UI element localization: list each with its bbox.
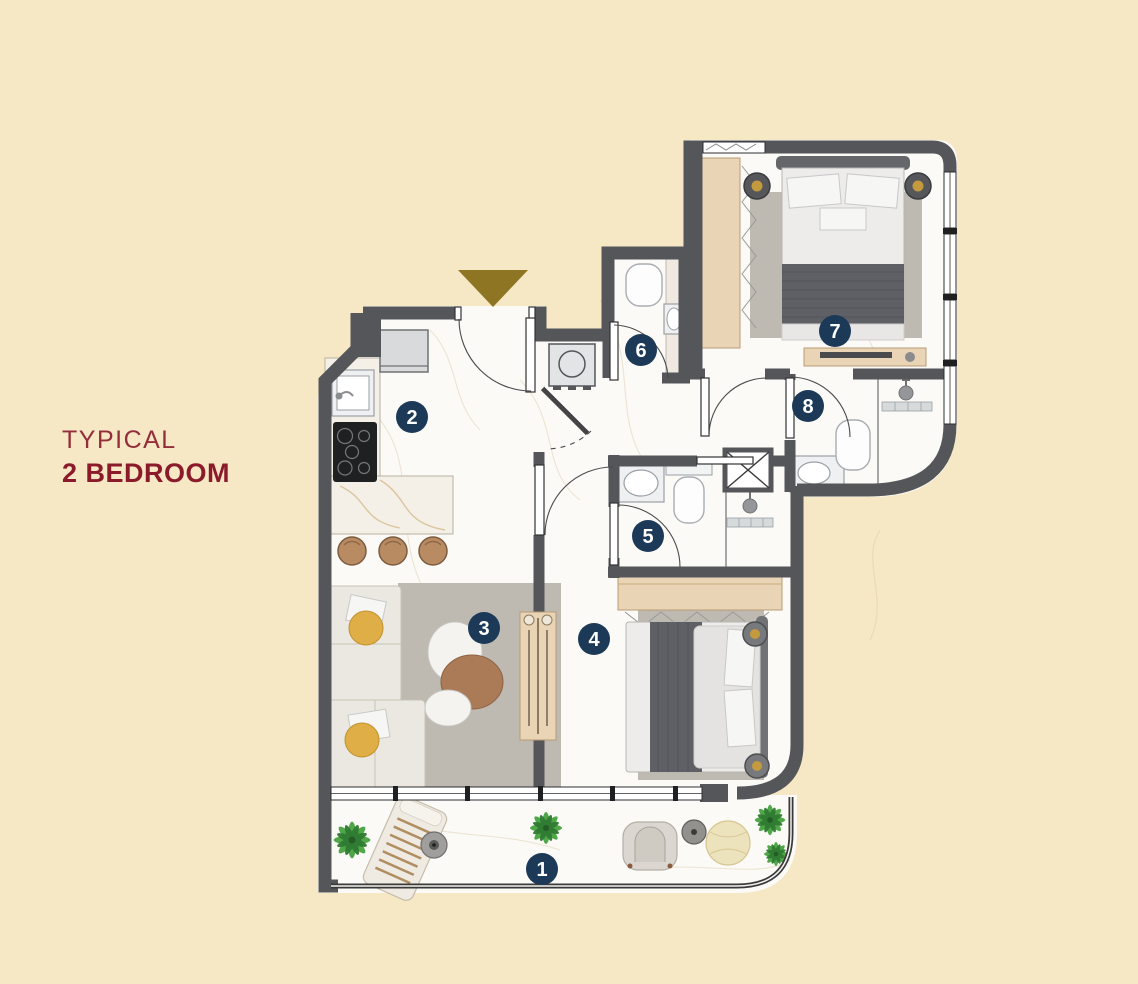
- entrance-triangle-icon: [458, 270, 528, 307]
- room-marker-3: 3: [468, 612, 500, 644]
- cushion: [345, 723, 379, 757]
- floor-plan-page: TYPICAL 2 BEDROOM: [0, 0, 1138, 984]
- svg-text:8: 8: [802, 396, 813, 418]
- sink-icon: [798, 462, 830, 484]
- wardrobe: [618, 576, 782, 610]
- room-marker-2: 2: [396, 401, 428, 433]
- toilet-icon: [626, 264, 662, 306]
- window-pillar: [700, 784, 728, 802]
- service-shaft: [725, 450, 771, 490]
- room-marker-5: 5: [632, 520, 664, 552]
- plant-icon: [755, 805, 785, 835]
- side-table: [421, 832, 447, 858]
- armchair: [623, 822, 677, 870]
- master-bedroom-windows: [943, 172, 957, 424]
- plant-icon: [334, 822, 371, 859]
- master-wardrobe: [698, 158, 740, 348]
- toilet-icon: [674, 477, 704, 523]
- svg-text:3: 3: [478, 618, 489, 640]
- sliding-door: [520, 612, 556, 740]
- toilet-icon: [836, 420, 870, 470]
- room-marker-1: 1: [526, 853, 558, 885]
- room-marker-4: 4: [578, 623, 610, 655]
- room-marker-8: 8: [792, 390, 824, 422]
- cushion: [349, 611, 383, 645]
- room-marker-6: 6: [625, 334, 657, 366]
- bathroom5-sliding-door: [697, 457, 753, 464]
- svg-text:1: 1: [536, 859, 547, 881]
- svg-text:6: 6: [635, 340, 646, 362]
- washing-machine-icon: [549, 344, 595, 390]
- master-bedroom: [698, 156, 931, 366]
- svg-text:4: 4: [588, 629, 600, 651]
- round-table: [682, 820, 706, 844]
- cooktop-icon: [333, 422, 377, 482]
- svg-text:2: 2: [406, 407, 417, 429]
- floor-plan-svg: 1 2 3 4 5 6 7 8: [0, 0, 1138, 984]
- bedroom-2: [618, 576, 782, 778]
- svg-text:7: 7: [829, 321, 840, 343]
- sink-icon: [624, 470, 658, 496]
- room-marker-7: 7: [819, 315, 851, 347]
- plant-icon: [530, 812, 562, 844]
- tv-icon: [820, 352, 892, 358]
- svg-text:5: 5: [642, 526, 653, 548]
- side-table: [425, 690, 471, 726]
- pouf: [706, 821, 750, 865]
- master-top-window: [703, 142, 765, 153]
- bar-stools: [338, 537, 447, 565]
